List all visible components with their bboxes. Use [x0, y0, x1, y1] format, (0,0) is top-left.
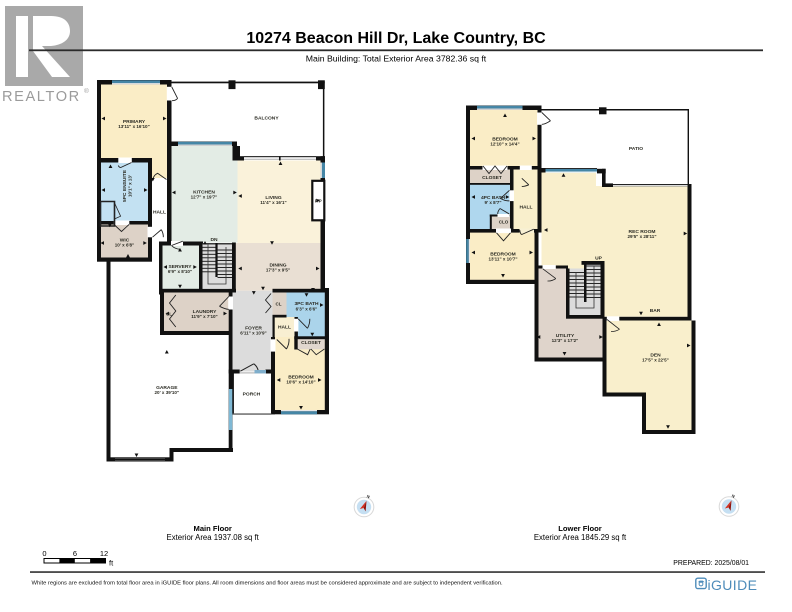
svg-text:13'11" x 10'7": 13'11" x 10'7" — [489, 257, 518, 262]
svg-text:PATIO: PATIO — [629, 146, 643, 152]
svg-text:10'1" x 13': 10'1" x 13' — [128, 175, 133, 197]
svg-text:CL: CL — [166, 312, 172, 317]
svg-text:17'5" x 22'5": 17'5" x 22'5" — [642, 358, 669, 363]
svg-text:HALL: HALL — [153, 210, 166, 216]
svg-text:PREPARED: 2025/08/01: PREPARED: 2025/08/01 — [673, 560, 749, 567]
svg-text:Exterior Area 1845.29 sq ft: Exterior Area 1845.29 sq ft — [534, 533, 627, 542]
svg-text:DN: DN — [210, 237, 218, 243]
svg-text:12'10" x 14'4": 12'10" x 14'4" — [490, 142, 519, 147]
svg-text:10'6" x 14'10": 10'6" x 14'10" — [286, 379, 315, 384]
svg-text:White regions are excluded fro: White regions are excluded from total fl… — [32, 581, 503, 587]
svg-text:12'7" x 19'7": 12'7" x 19'7" — [191, 195, 218, 200]
svg-text:Main Building: Total Exterior: Main Building: Total Exterior Area 3782.… — [306, 54, 487, 64]
svg-text:17'3" x 9'5": 17'3" x 9'5" — [266, 268, 290, 273]
svg-text:11'4" x 16'1": 11'4" x 16'1" — [260, 200, 286, 205]
svg-text:11'9" x 7'10": 11'9" x 7'10" — [191, 314, 217, 319]
svg-text:Main Floor: Main Floor — [194, 524, 232, 533]
svg-text:6'3" x 6'6": 6'3" x 6'6" — [296, 307, 318, 312]
svg-text:HALL: HALL — [278, 325, 291, 331]
svg-text:CLOSET: CLOSET — [482, 175, 502, 181]
svg-text:Exterior Area 1937.08 sq ft: Exterior Area 1937.08 sq ft — [167, 533, 260, 542]
svg-text:REALTOR: REALTOR — [2, 89, 81, 105]
svg-text:6'9" x 8'10": 6'9" x 8'10" — [168, 269, 192, 274]
svg-text:PORCH: PORCH — [243, 392, 261, 398]
svg-text:10' x 6'8": 10' x 6'8" — [115, 242, 135, 247]
svg-text:13'11" x 16'10": 13'11" x 16'10" — [118, 124, 150, 129]
svg-text:20' x 39'10": 20' x 39'10" — [155, 390, 180, 395]
svg-text:29'5" x 28'11": 29'5" x 28'11" — [628, 234, 657, 239]
svg-text:CLOSET: CLOSET — [301, 340, 321, 346]
svg-text:UP: UP — [595, 256, 603, 262]
svg-text:6'11" x 10'9": 6'11" x 10'9" — [240, 330, 266, 335]
svg-text:HALL: HALL — [519, 204, 532, 210]
svg-text:CL: CL — [275, 301, 281, 306]
svg-text:0: 0 — [42, 549, 46, 558]
svg-text:iGUIDE: iGUIDE — [708, 577, 758, 593]
svg-text:10274 Beacon Hill Dr, Lake Cou: 10274 Beacon Hill Dr, Lake Country, BC — [246, 30, 546, 47]
svg-text:BAR: BAR — [650, 308, 661, 314]
svg-text:Lower Floor: Lower Floor — [558, 524, 601, 533]
svg-text:CLO: CLO — [499, 219, 509, 224]
svg-text:9' x 8'7": 9' x 8'7" — [485, 200, 502, 205]
svg-text:BALCONY: BALCONY — [254, 116, 279, 122]
svg-text:12: 12 — [100, 549, 108, 558]
svg-text:6: 6 — [73, 549, 77, 558]
svg-text:®: ® — [84, 87, 89, 95]
svg-text:12'3" x 17'2": 12'3" x 17'2" — [552, 338, 579, 343]
